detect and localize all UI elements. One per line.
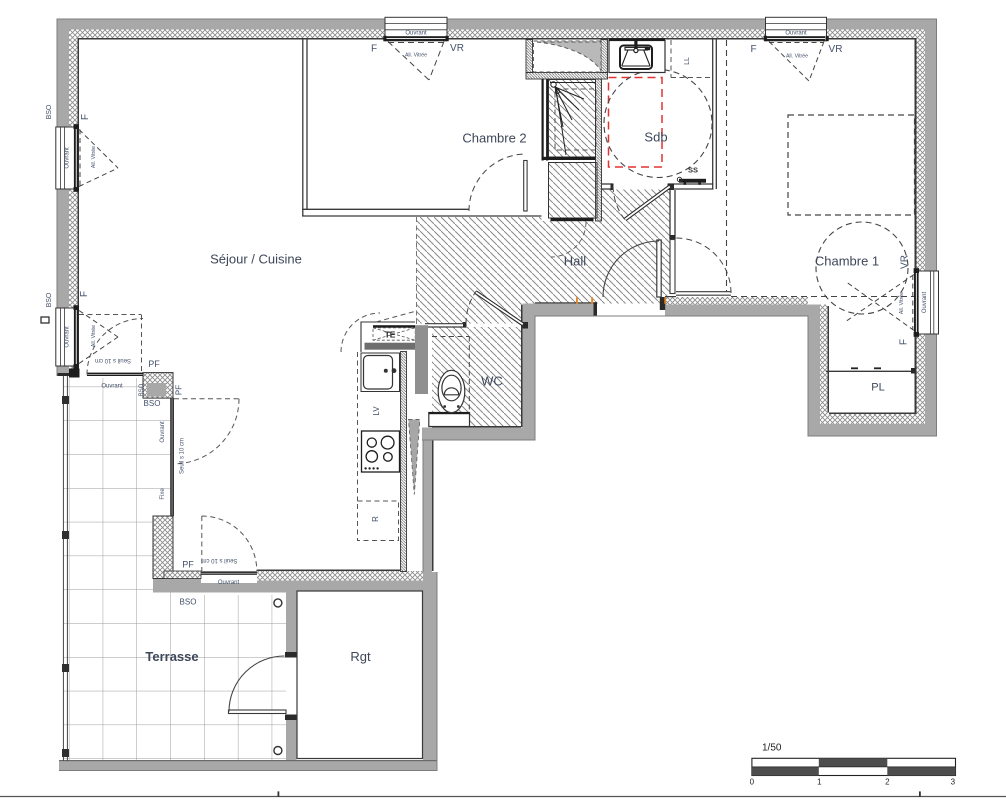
svg-text:F: F <box>371 44 377 55</box>
svg-text:Ouvrant: Ouvrant <box>785 31 807 37</box>
svg-text:1/50: 1/50 <box>762 743 782 754</box>
svg-text:1: 1 <box>817 778 822 787</box>
svg-text:All. Vitrée: All. Vitrée <box>899 292 905 314</box>
svg-text:Ouvrant: Ouvrant <box>922 291 928 313</box>
svg-text:Ouvrant: Ouvrant <box>218 580 240 586</box>
svg-text:Chambre 2: Chambre 2 <box>462 131 526 146</box>
svg-text:Hall: Hall <box>564 254 587 269</box>
svg-text:BSO: BSO <box>46 292 53 307</box>
svg-text:Ouvrant: Ouvrant <box>65 147 71 169</box>
svg-text:VR: VR <box>829 44 843 55</box>
svg-text:BSO: BSO <box>144 399 161 408</box>
svg-text:PF: PF <box>182 560 194 570</box>
svg-text:All. Vitrée: All. Vitrée <box>91 146 97 168</box>
svg-text:TE: TE <box>385 329 396 339</box>
svg-text:All. Vitrée: All. Vitrée <box>786 54 808 60</box>
svg-text:F: F <box>750 44 756 55</box>
svg-text:PL: PL <box>871 382 884 394</box>
svg-text:LL: LL <box>684 57 691 65</box>
svg-text:0: 0 <box>750 778 755 787</box>
svg-text:Ouvrant: Ouvrant <box>101 384 123 390</box>
svg-text:WC: WC <box>481 374 503 389</box>
svg-text:Sdb: Sdb <box>644 130 667 145</box>
svg-text:3: 3 <box>951 778 956 787</box>
svg-text:Chambre 1: Chambre 1 <box>815 254 879 269</box>
svg-text:Terrasse: Terrasse <box>145 649 198 664</box>
svg-text:SS: SS <box>688 166 698 175</box>
svg-text:VR: VR <box>900 255 911 269</box>
svg-text:Fixe: Fixe <box>160 488 166 500</box>
svg-text:Ouvrant: Ouvrant <box>65 326 71 348</box>
svg-text:Ouvrant: Ouvrant <box>405 31 427 37</box>
svg-text:Seuil s 10 cm: Seuil s 10 cm <box>95 357 131 363</box>
svg-text:R: R <box>371 516 380 522</box>
svg-text:Seuil s 10 cm: Seuil s 10 cm <box>201 557 237 563</box>
svg-text:F: F <box>899 339 910 345</box>
svg-text:PF: PF <box>148 359 160 369</box>
svg-text:VR: VR <box>450 43 464 54</box>
svg-text:Rgt: Rgt <box>350 649 371 664</box>
svg-text:Séjour / Cuisine: Séjour / Cuisine <box>210 252 302 267</box>
svg-text:2: 2 <box>885 778 890 787</box>
svg-text:BSO: BSO <box>46 104 53 119</box>
svg-text:F: F <box>79 291 90 297</box>
svg-text:BSO: BSO <box>180 598 197 607</box>
svg-text:Ouvrant: Ouvrant <box>160 421 166 443</box>
svg-text:PF: PF <box>175 385 184 395</box>
svg-text:BSO: BSO <box>139 383 145 396</box>
svg-text:LV: LV <box>372 406 381 416</box>
svg-text:All. Vitrée: All. Vitrée <box>405 53 427 59</box>
svg-text:F: F <box>80 114 91 120</box>
svg-text:All. Vitrée: All. Vitrée <box>91 325 97 347</box>
svg-text:Seuil s 10 cm: Seuil s 10 cm <box>180 438 186 474</box>
